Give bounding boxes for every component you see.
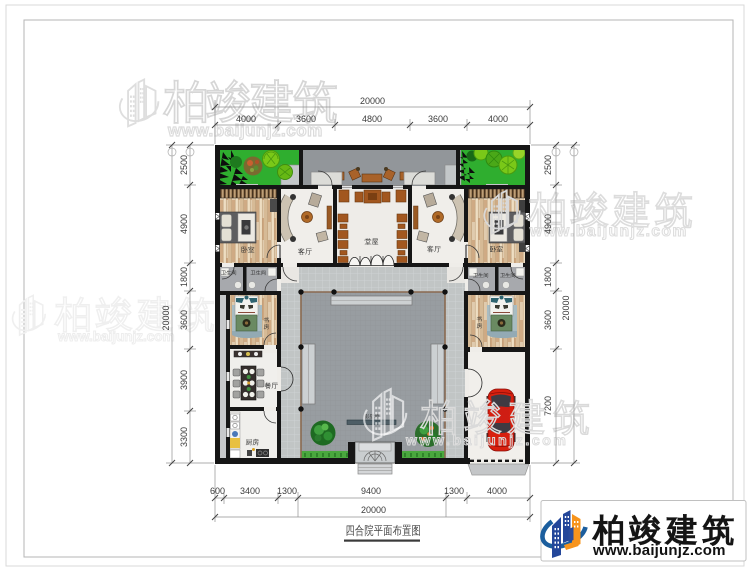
svg-text:1800: 1800 xyxy=(179,267,189,287)
svg-text:www.baijunjz.com: www.baijunjz.com xyxy=(57,329,175,344)
svg-text:3400: 3400 xyxy=(240,486,260,496)
svg-text:3600: 3600 xyxy=(428,114,448,124)
svg-text:2500: 2500 xyxy=(543,155,553,175)
svg-text:www.baijunjz.com: www.baijunjz.com xyxy=(405,432,568,448)
svg-text:4800: 4800 xyxy=(362,114,382,124)
svg-text:2500: 2500 xyxy=(179,155,189,175)
svg-text:www.baijunjz.com: www.baijunjz.com xyxy=(592,542,726,559)
svg-text:3600: 3600 xyxy=(296,114,316,124)
svg-text:4000: 4000 xyxy=(487,486,507,496)
svg-text:3600: 3600 xyxy=(179,310,189,330)
svg-text:20000: 20000 xyxy=(561,295,571,320)
svg-text:4900: 4900 xyxy=(543,214,553,234)
svg-text:20000: 20000 xyxy=(361,505,386,515)
svg-text:4900: 4900 xyxy=(179,214,189,234)
svg-text:1800: 1800 xyxy=(543,267,553,287)
svg-text:20000: 20000 xyxy=(161,305,171,330)
svg-text:600: 600 xyxy=(210,486,225,496)
svg-text:1300: 1300 xyxy=(277,486,297,496)
svg-text:3300: 3300 xyxy=(179,427,189,447)
svg-text:4000: 4000 xyxy=(488,114,508,124)
svg-text:9400: 9400 xyxy=(361,486,381,496)
svg-text:20000: 20000 xyxy=(360,96,385,106)
svg-text:3900: 3900 xyxy=(179,370,189,390)
svg-text:1300: 1300 xyxy=(444,486,464,496)
svg-text:4000: 4000 xyxy=(236,114,256,124)
svg-text:3600: 3600 xyxy=(543,310,553,330)
svg-text:7200: 7200 xyxy=(543,396,553,416)
